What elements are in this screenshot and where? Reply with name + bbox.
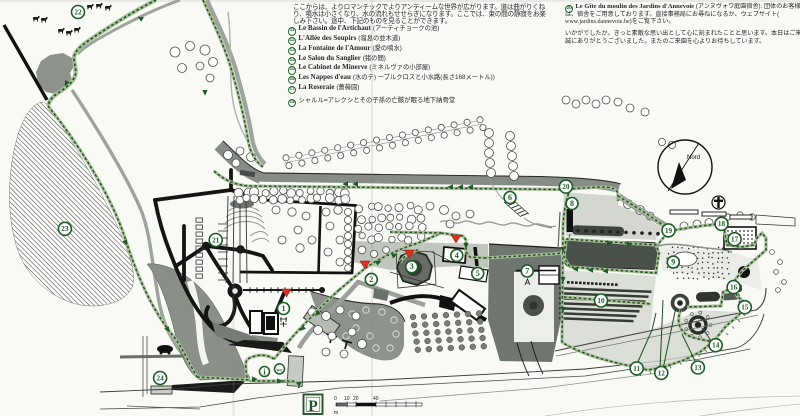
svg-text:8: 8 <box>570 199 574 208</box>
svg-text:40: 40 <box>373 396 379 402</box>
svg-text:10: 10 <box>344 396 350 402</box>
svg-text:19: 19 <box>665 227 673 235</box>
svg-text:14: 14 <box>712 342 720 350</box>
svg-text:23: 23 <box>61 225 69 233</box>
svg-text:20: 20 <box>353 396 359 402</box>
svg-text:5: 5 <box>476 269 480 278</box>
svg-text:0: 0 <box>334 396 337 402</box>
svg-text:22: 22 <box>74 8 82 16</box>
svg-text:1: 1 <box>282 304 286 313</box>
svg-text:wc: wc <box>276 367 283 373</box>
svg-text:Nord: Nord <box>687 155 700 161</box>
svg-text:4: 4 <box>455 251 459 260</box>
svg-text:18: 18 <box>718 220 726 228</box>
svg-text:m: m <box>334 410 338 416</box>
svg-text:2: 2 <box>369 275 373 284</box>
svg-text:6: 6 <box>508 193 512 202</box>
svg-text:7: 7 <box>525 266 529 275</box>
svg-text:10: 10 <box>597 297 605 305</box>
svg-text:9: 9 <box>671 258 675 267</box>
svg-text:P: P <box>308 398 318 415</box>
svg-text:20: 20 <box>562 183 570 191</box>
svg-text:24: 24 <box>157 374 165 382</box>
svg-text:21: 21 <box>212 236 220 244</box>
svg-text:3: 3 <box>410 262 414 271</box>
svg-text:16: 16 <box>730 284 738 292</box>
svg-text:12: 12 <box>658 369 666 377</box>
svg-text:17: 17 <box>731 236 739 244</box>
svg-text:15: 15 <box>741 304 749 312</box>
svg-text:13: 13 <box>694 364 702 372</box>
svg-text:11: 11 <box>633 365 640 373</box>
